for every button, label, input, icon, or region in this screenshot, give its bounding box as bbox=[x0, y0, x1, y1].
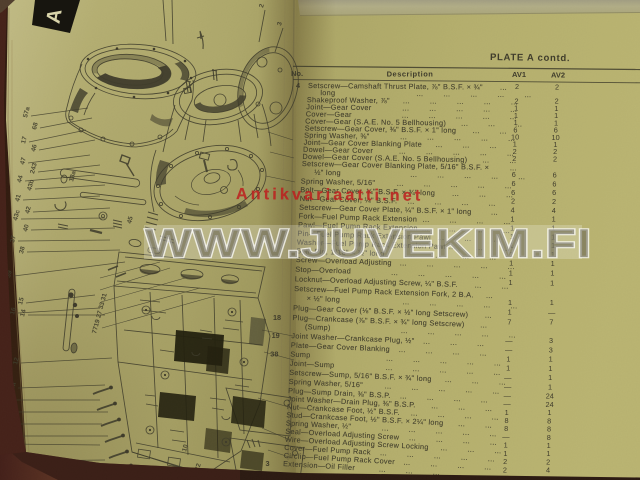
svg-text:Antikvariaatti.net: Antikvariaatti.net bbox=[236, 186, 424, 205]
svg-text:WWW.JUVEKIM.FI: WWW.JUVEKIM.FI bbox=[145, 221, 592, 266]
